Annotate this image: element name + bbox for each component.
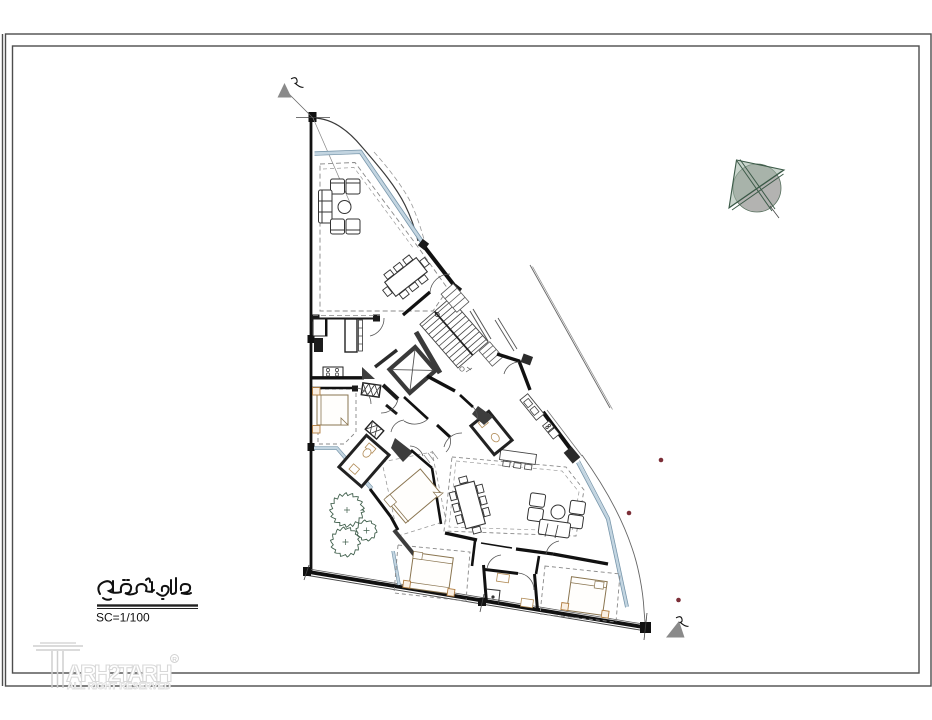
svg-text:ALL RIGHT RESERVED: ALL RIGHT RESERVED <box>67 681 171 692</box>
svg-text:SC=1/100: SC=1/100 <box>96 611 150 625</box>
svg-text:R: R <box>172 656 177 663</box>
